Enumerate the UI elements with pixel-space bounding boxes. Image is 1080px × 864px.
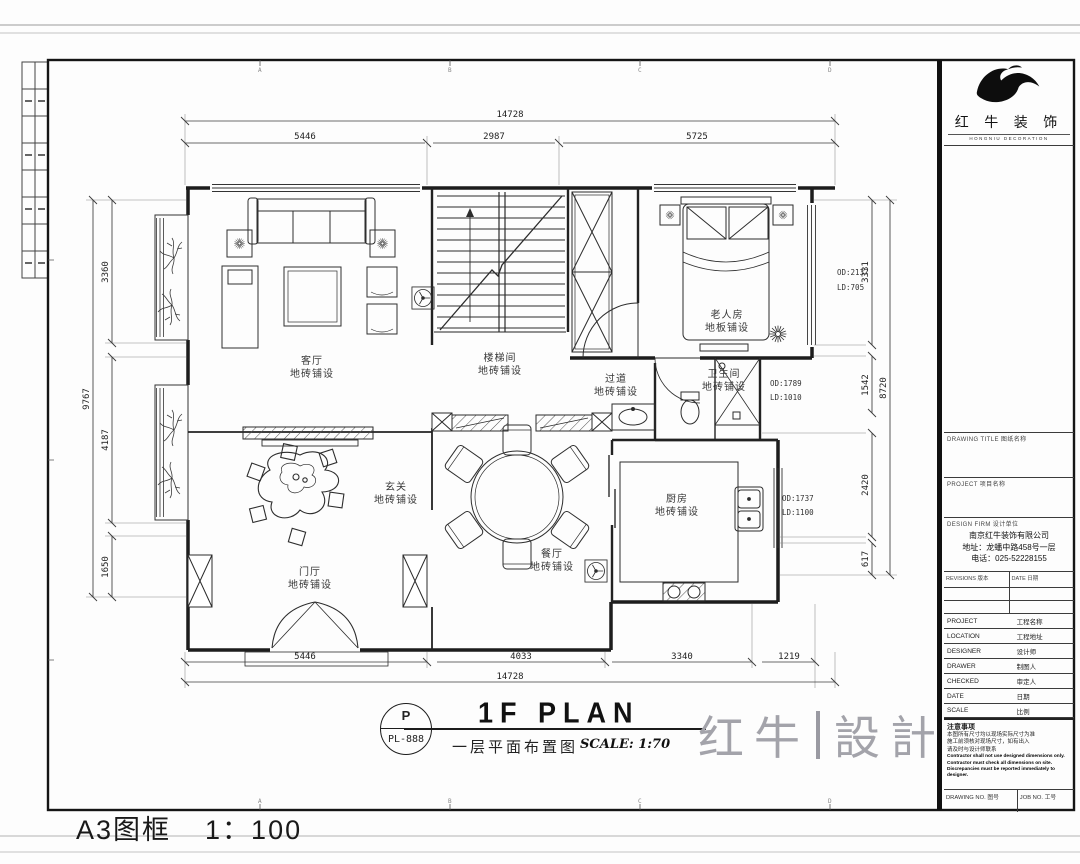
watermark-right: 設計 bbox=[834, 702, 946, 768]
svg-text:楼梯间: 楼梯间 bbox=[484, 351, 517, 364]
notes-cell: 注意事项 本图所有尺寸均以现场实际尺寸为准 施工前须核对现场尺寸，如有出入 请及… bbox=[944, 718, 1074, 790]
svg-text:4187: 4187 bbox=[101, 429, 111, 451]
plan-subtitle-cn: 一层平面布置图 bbox=[452, 736, 578, 757]
room-labels: 客厅 地砖铺设 楼梯间 地砖铺设 老人房 地板铺设 过道 地砖铺设 卫生间 地砖… bbox=[288, 308, 749, 591]
project-cell: PROJECT 项目名称 bbox=[944, 478, 1074, 518]
note-line-en: Contractor shall not use designed dimens… bbox=[947, 754, 1071, 760]
svg-text:2420: 2420 bbox=[861, 474, 871, 496]
info-row-designer: DESIGNER 设计师 bbox=[944, 644, 1074, 659]
svg-text:5446: 5446 bbox=[294, 132, 316, 142]
hall-cabinets bbox=[452, 415, 592, 431]
revision-row bbox=[944, 588, 1074, 601]
drawing-sheet: A B C D A B C D bbox=[0, 0, 1080, 864]
living-room-furniture bbox=[222, 198, 397, 348]
format-scale: 1：100 bbox=[205, 815, 302, 845]
svg-text:地砖铺设: 地砖铺设 bbox=[655, 505, 699, 518]
info-row-scale: SCALE 比例 bbox=[944, 704, 1074, 718]
svg-text:3340: 3340 bbox=[671, 652, 693, 662]
svg-text:地砖铺设: 地砖铺设 bbox=[478, 364, 522, 377]
svg-text:5725: 5725 bbox=[686, 132, 708, 142]
format-name: A3图框 bbox=[76, 815, 171, 845]
svg-text:过道: 过道 bbox=[605, 372, 627, 385]
firm-phone: 电话：025-52228155 bbox=[944, 553, 1074, 565]
watermark-divider bbox=[816, 711, 820, 759]
svg-text:地砖铺设: 地砖铺设 bbox=[290, 367, 334, 380]
project-header: PROJECT 项目名称 bbox=[944, 478, 1074, 489]
svg-text:5446: 5446 bbox=[294, 652, 316, 662]
svg-text:LD:705: LD:705 bbox=[837, 283, 864, 292]
title-block: 红 牛 装 饰 HONGNIU DECORATION DRAWING TITLE… bbox=[944, 60, 1074, 812]
svg-text:客厅: 客厅 bbox=[301, 354, 323, 367]
drawing-no-cell: DRAWING NO. 图号 bbox=[944, 790, 1017, 812]
sheet-format-label: A3图框1：100 bbox=[76, 808, 336, 847]
svg-text:9767: 9767 bbox=[82, 388, 92, 410]
plan-scale: SCALE: 1:70 bbox=[580, 737, 670, 752]
info-row-drawer: DRAWER 制图人 bbox=[944, 659, 1074, 674]
watermark-left: 红牛 bbox=[698, 702, 810, 768]
svg-text:14728: 14728 bbox=[496, 672, 523, 682]
drawing-title-cell: DRAWING TITLE 图纸名称 bbox=[944, 433, 1074, 478]
svg-text:OD:2137: OD:2137 bbox=[837, 268, 869, 277]
firm-address: 地址：龙蟠中路458号一层 bbox=[944, 542, 1074, 554]
ceiling-fan-dining bbox=[585, 560, 607, 582]
info-row-location: LOCATION 工程地址 bbox=[944, 629, 1074, 644]
svg-text:地砖铺设: 地砖铺设 bbox=[288, 578, 332, 591]
svg-text:C: C bbox=[638, 798, 642, 805]
bubble-letter: P bbox=[381, 704, 431, 728]
note-line: 施工前须核对现场尺寸，如有出入 bbox=[947, 739, 1071, 746]
svg-text:门厅: 门厅 bbox=[299, 565, 321, 578]
note-line-en: Discrepancies must be reported immediate… bbox=[947, 767, 1071, 779]
brand-caption: HONGNIU DECORATION bbox=[948, 134, 1070, 141]
revision-date-label: DATE 日期 bbox=[1009, 572, 1075, 587]
title-block-bottom-row: DRAWING NO. 图号 JOB NO. 工号 bbox=[944, 790, 1074, 812]
svg-text:玄关: 玄关 bbox=[385, 480, 407, 493]
svg-text:餐厅: 餐厅 bbox=[541, 547, 563, 560]
svg-text:LD:1100: LD:1100 bbox=[782, 508, 814, 517]
svg-text:617: 617 bbox=[861, 551, 871, 567]
plant-icon bbox=[770, 326, 787, 343]
drawing-title-header: DRAWING TITLE 图纸名称 bbox=[944, 433, 1074, 444]
svg-text:3360: 3360 bbox=[101, 261, 111, 283]
opening-annotations: OD:2137 LD:705 OD:1789 LD:1010 OD:1737 L… bbox=[770, 268, 869, 517]
firm-name: 南京红牛装饰有限公司 bbox=[944, 530, 1074, 542]
revision-row bbox=[944, 601, 1074, 614]
title-block-blank bbox=[944, 146, 1074, 433]
svg-text:1219: 1219 bbox=[778, 652, 800, 662]
watermark: 红牛 設計 bbox=[698, 702, 946, 768]
job-no-cell: JOB NO. 工号 bbox=[1017, 790, 1074, 812]
svg-text:B: B bbox=[448, 798, 452, 805]
bull-swoosh-icon bbox=[970, 62, 1048, 106]
svg-text:A: A bbox=[258, 798, 262, 805]
svg-text:C: C bbox=[638, 67, 642, 74]
svg-text:地板铺设: 地板铺设 bbox=[705, 321, 749, 334]
svg-text:A: A bbox=[258, 67, 262, 74]
info-row-checked: CHECKED 审定人 bbox=[944, 674, 1074, 689]
svg-text:D: D bbox=[828, 798, 832, 805]
stairs bbox=[437, 192, 565, 332]
entry-door bbox=[245, 602, 388, 666]
svg-text:地砖铺设: 地砖铺设 bbox=[374, 493, 418, 506]
svg-text:卫生间: 卫生间 bbox=[708, 367, 741, 380]
design-firm-cell: DESIGN FIRM 设计单位 南京红牛装饰有限公司 地址：龙蟠中路458号一… bbox=[944, 518, 1074, 572]
ceiling-fan-living bbox=[412, 287, 434, 309]
svg-text:D: D bbox=[828, 67, 832, 74]
svg-text:地砖铺设: 地砖铺设 bbox=[702, 380, 746, 393]
dining-furniture bbox=[444, 425, 591, 569]
brand-name: 红 牛 装 饰 bbox=[944, 112, 1074, 132]
revision-header-row: REVISIONS 版本 DATE 日期 bbox=[944, 572, 1074, 588]
svg-text:B: B bbox=[448, 67, 452, 74]
kitchen-door bbox=[609, 455, 615, 528]
svg-text:LD:1010: LD:1010 bbox=[770, 393, 802, 402]
wash-basin bbox=[612, 404, 655, 430]
svg-text:4033: 4033 bbox=[510, 652, 532, 662]
revision-col-label: REVISIONS 版本 bbox=[944, 572, 1009, 587]
svg-text:2987: 2987 bbox=[483, 132, 505, 142]
svg-text:OD:1789: OD:1789 bbox=[770, 379, 802, 388]
info-row-date: DATE 日期 bbox=[944, 689, 1074, 704]
svg-text:老人房: 老人房 bbox=[711, 308, 744, 321]
wall-columns bbox=[188, 413, 612, 607]
kitchen-fixtures bbox=[620, 462, 763, 601]
logo-cell: 红 牛 装 饰 HONGNIU DECORATION bbox=[944, 60, 1074, 146]
revision-strip bbox=[22, 62, 48, 278]
firm-header: DESIGN FIRM 设计单位 bbox=[944, 518, 1074, 529]
foyer-tea-table bbox=[247, 444, 344, 546]
svg-text:1542: 1542 bbox=[861, 374, 871, 396]
svg-text:14728: 14728 bbox=[496, 110, 523, 120]
svg-text:地砖铺设: 地砖铺设 bbox=[530, 560, 574, 573]
info-row-project: PROJECT 工程名称 bbox=[944, 614, 1074, 629]
notes-title: 注意事项 bbox=[947, 722, 1071, 732]
svg-text:1650: 1650 bbox=[101, 556, 111, 578]
tv-cabinet bbox=[243, 427, 373, 446]
plan-title: 1F PLAN bbox=[478, 697, 640, 730]
bubble-code: PL-888 bbox=[381, 729, 431, 751]
svg-text:8720: 8720 bbox=[879, 377, 889, 399]
svg-text:地砖铺设: 地砖铺设 bbox=[594, 385, 638, 398]
svg-text:OD:1737: OD:1737 bbox=[782, 494, 814, 503]
svg-text:厨房: 厨房 bbox=[666, 492, 688, 505]
